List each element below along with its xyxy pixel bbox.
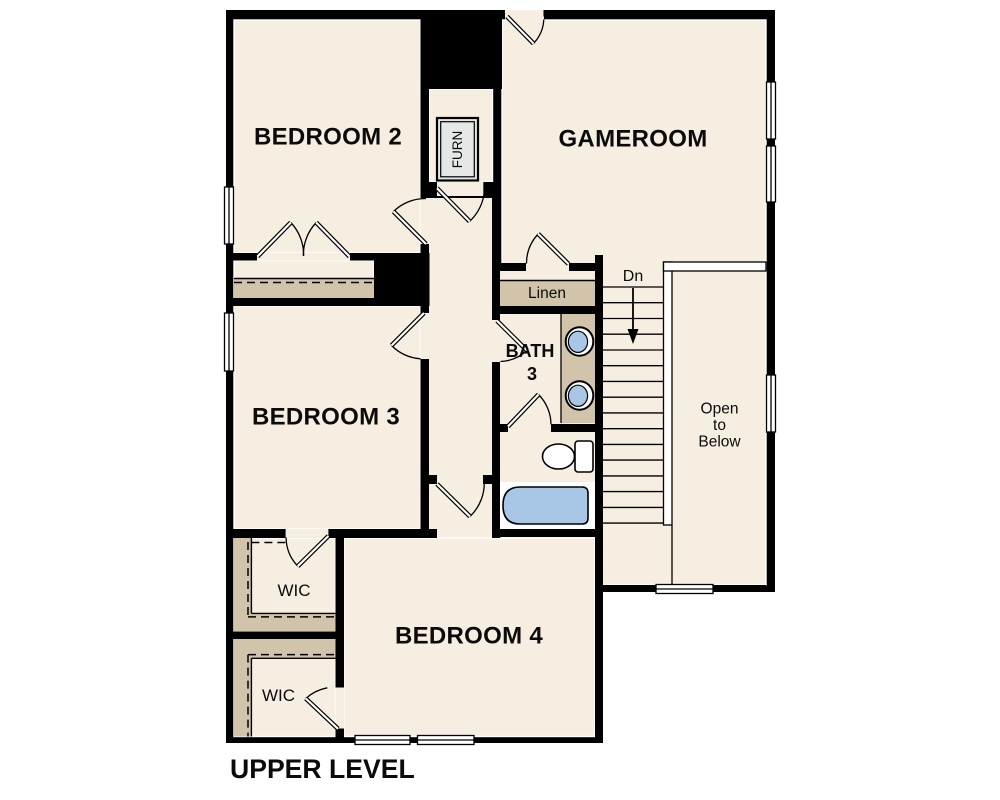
svg-text:Linen: Linen [528, 285, 566, 302]
svg-text:BEDROOM 2: BEDROOM 2 [254, 124, 402, 151]
svg-text:Below: Below [698, 434, 741, 451]
svg-text:BATH: BATH [506, 341, 555, 361]
svg-text:WIC: WIC [262, 686, 295, 705]
svg-text:FURN: FURN [450, 131, 465, 169]
svg-text:BEDROOM 3: BEDROOM 3 [252, 404, 400, 431]
svg-text:Dn: Dn [623, 268, 643, 285]
svg-text:BEDROOM 4: BEDROOM 4 [395, 623, 543, 650]
svg-text:GAMEROOM: GAMEROOM [558, 126, 707, 153]
svg-text:Open: Open [701, 401, 739, 418]
svg-text:WIC: WIC [277, 581, 310, 600]
svg-text:UPPER LEVEL: UPPER LEVEL [230, 754, 415, 784]
svg-text:to: to [713, 417, 726, 434]
svg-text:3: 3 [527, 364, 537, 384]
